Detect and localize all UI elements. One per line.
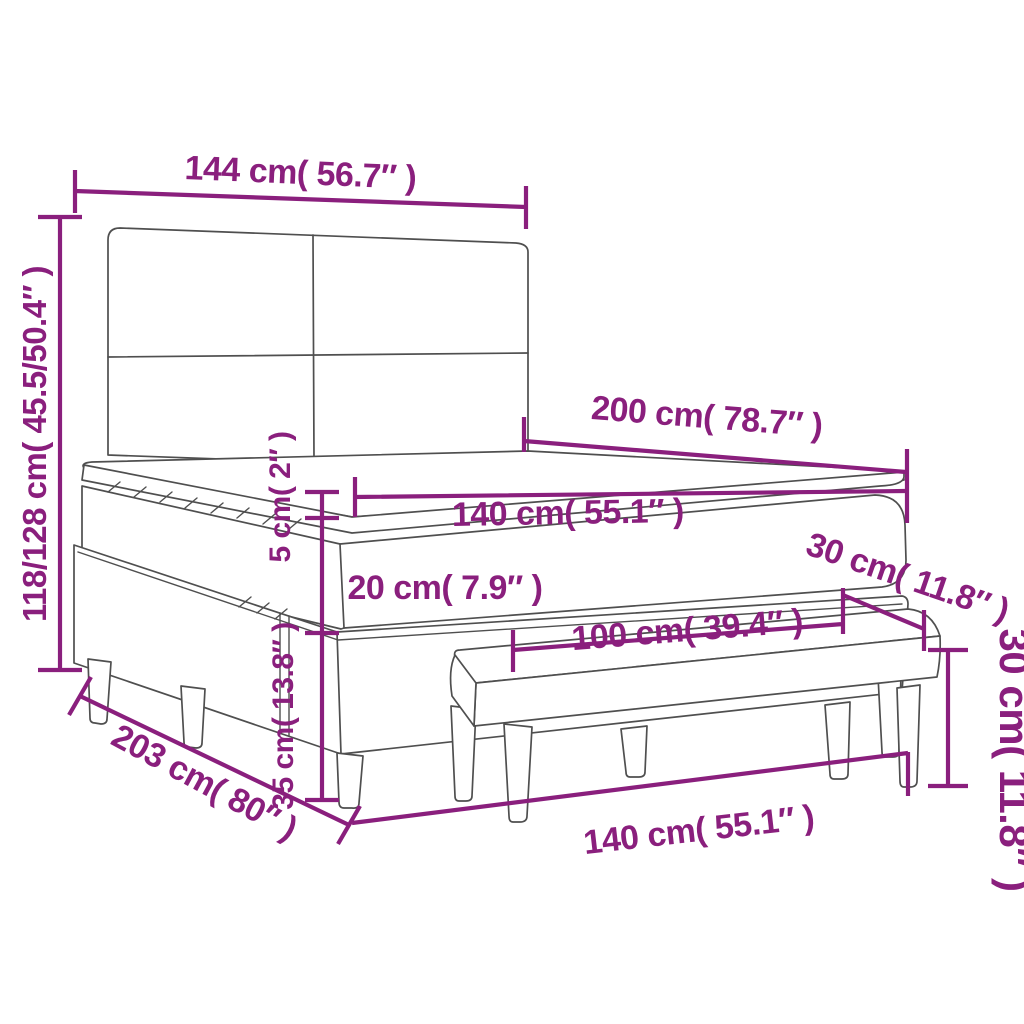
bed-dimension-diagram: 144 cm( 56.7″ ) 118/128 cm( 45.5/50.4″ )… bbox=[0, 0, 1024, 1024]
dim-bed-foot-width-label: 140 cm( 55.1″ ) bbox=[581, 798, 816, 862]
dim-bed-height-label: 118/128 cm( 45.5/50.4″ ) bbox=[16, 266, 53, 622]
bench-leg-back-right bbox=[825, 702, 850, 779]
diagram-canvas: 144 cm( 56.7″ ) 118/128 cm( 45.5/50.4″ )… bbox=[0, 0, 1024, 1024]
headboard bbox=[108, 228, 528, 470]
bed-leg-front-left bbox=[337, 753, 363, 808]
dim-headboard-width-label: 144 cm( 56.7″ ) bbox=[184, 149, 417, 197]
dim-topper-height-label: 5 cm( 2″ ) bbox=[264, 431, 297, 562]
dim-headboard-width: 144 cm( 56.7″ ) bbox=[75, 149, 526, 229]
dim-bed-length-label: 200 cm( 78.7″ ) bbox=[590, 389, 824, 445]
headboard-vertical-divider bbox=[313, 235, 314, 460]
dim-mattress-width-label: 140 cm( 55.1″ ) bbox=[452, 492, 684, 534]
dim-bed-height: 118/128 cm( 45.5/50.4″ ) bbox=[16, 217, 82, 670]
bench-leg-back-mid bbox=[621, 726, 647, 777]
dim-bench-height-label: 30 cm( 11.8″ ) bbox=[991, 629, 1024, 892]
dim-bench-height: 30 cm( 11.8″ ) bbox=[928, 629, 1024, 892]
dim-mattress-height-label: 20 cm( 7.9″ ) bbox=[348, 569, 543, 607]
bed-leg-mid-left bbox=[181, 686, 205, 748]
dim-base-height-label: 35 cm( 13.8″ ) bbox=[267, 622, 300, 809]
bed-leg-back-left bbox=[88, 659, 111, 724]
bench-leg-front-left bbox=[504, 724, 532, 822]
